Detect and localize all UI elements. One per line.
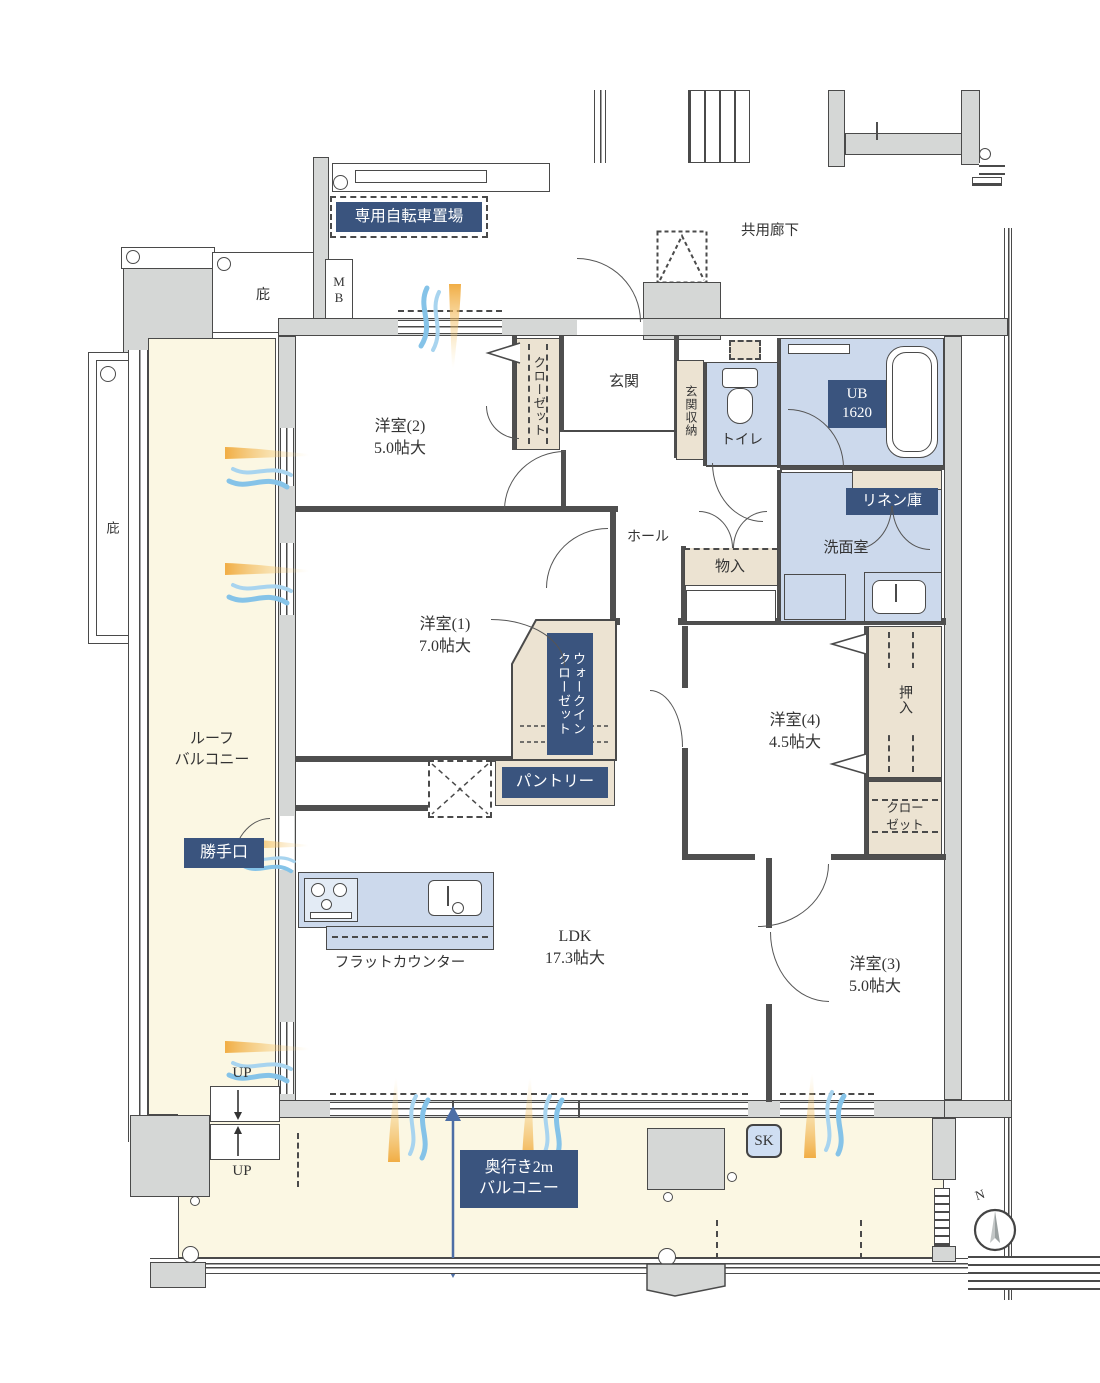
- faucet-stem: [447, 886, 449, 906]
- entrance-dashed-door: [656, 230, 708, 284]
- eaves-left-inner: [96, 360, 130, 636]
- meter-box-label: M B: [325, 261, 353, 319]
- slide-chevron-icon: [828, 632, 868, 656]
- partition: [296, 506, 618, 512]
- bathtub-inner: [892, 352, 932, 452]
- wall-right-ext: [944, 1100, 1012, 1118]
- linen-shelf: [852, 470, 942, 490]
- room-size: 5.0帖大: [374, 438, 426, 460]
- hall-passage-door: [546, 528, 608, 588]
- washer-space: [784, 574, 846, 620]
- wall-top-1: [828, 90, 845, 167]
- room-name: 洋室(4): [770, 710, 821, 732]
- balcony-rail-bottom: [150, 1258, 1012, 1274]
- stair-arrow-icon: [232, 1126, 244, 1158]
- partition: [296, 805, 428, 811]
- bicycle-parking-label: 専用自転車置場: [336, 202, 482, 232]
- wall-right: [944, 336, 962, 1100]
- closet-bedroom2-label: クローゼット: [522, 350, 554, 442]
- bedroom1-label: 洋室(1) 7.0帖大: [385, 612, 505, 660]
- sk-label: SK: [746, 1126, 782, 1156]
- drain-icon: [663, 1192, 673, 1202]
- wall-top: [278, 318, 1008, 336]
- up-label-bottom: UP: [218, 1160, 266, 1182]
- bedroom4-door: [758, 864, 829, 927]
- entrance-label: 玄関: [592, 370, 656, 394]
- room-size: 17.3帖大: [545, 948, 605, 970]
- fridge-x-icon: [428, 760, 492, 818]
- opening: [620, 618, 678, 625]
- toilet-label: トイレ: [714, 430, 770, 452]
- basin-tap: [895, 584, 897, 602]
- pipe-icon: [979, 148, 991, 160]
- burner-icon: [321, 899, 332, 910]
- eaves-joint-icon: [100, 366, 116, 382]
- entrance-door: [577, 258, 641, 322]
- airflow-icon: [223, 557, 311, 611]
- airflow-icon: [798, 1072, 852, 1160]
- grill: [310, 912, 352, 919]
- stair-box-bottom: [210, 1124, 280, 1160]
- balcony-partition-dash: [297, 1133, 299, 1187]
- airflow-icon: [413, 282, 467, 370]
- room-size: 7.0帖大: [419, 636, 471, 658]
- stair-arrow-icon: [232, 1088, 244, 1120]
- back-door-label: 勝手口: [184, 838, 264, 868]
- monoire-door-right: [733, 511, 767, 548]
- faucet-icon: [452, 902, 464, 914]
- bedroom2-label: 洋室(2) 5.0帖大: [340, 414, 460, 462]
- airflow-icon: [223, 441, 311, 495]
- bicycle-roof-inner: [355, 170, 487, 183]
- right-fence-lines: [968, 1256, 1100, 1290]
- wall-top-3: [961, 90, 980, 165]
- compass-icon: [966, 1198, 1024, 1256]
- burner-icon: [333, 883, 347, 897]
- entrance-storage-label: 玄関収納: [676, 372, 704, 450]
- eaves-left-label: 庇: [100, 508, 122, 548]
- roof-balcony-label: ルーフ バルコニー: [160, 724, 264, 776]
- mullion: [578, 1100, 580, 1118]
- bedroom4-label: 洋室(4) 4.5帖大: [735, 708, 855, 756]
- burner-icon: [311, 883, 325, 897]
- balcony-right-wall: [932, 1118, 956, 1180]
- opening: [682, 688, 688, 748]
- room-name: 洋室(2): [375, 416, 426, 438]
- shelf-joint-icon: [217, 257, 231, 271]
- oshiire-label: 押入: [886, 668, 922, 732]
- room-name: 洋室(3): [850, 954, 901, 976]
- toilet-bowl: [727, 388, 753, 424]
- closet-bedroom4-label: クロー ゼット: [872, 796, 938, 838]
- balcony-depth-label: 奥行き2m バルコニー: [460, 1150, 578, 1208]
- toilet-upper-storage: [729, 340, 761, 360]
- rail-end-block: [150, 1262, 206, 1288]
- stair-box-top: [210, 1086, 280, 1122]
- drain-icon: [190, 1196, 200, 1206]
- wall-top-2: [845, 133, 963, 155]
- rail-joint-icon: [182, 1246, 199, 1263]
- flat-counter-label: フラットカウンター: [322, 952, 478, 974]
- vent-lines: [979, 163, 1005, 175]
- eaves-top-label: 庇: [246, 284, 280, 308]
- monoire-label: 物入: [700, 554, 760, 580]
- wall-tick: [876, 122, 878, 140]
- hall-label: ホール: [616, 527, 680, 549]
- up-label-top: UP: [218, 1062, 266, 1084]
- ldk-label: LDK 17.3帖大: [515, 924, 635, 972]
- shelf-joint-icon: [126, 250, 140, 264]
- stairwell-wall: [594, 90, 606, 163]
- room-name: 洋室(1): [420, 614, 471, 636]
- balcony-left-block: [130, 1115, 210, 1197]
- balcony-structure-block: [647, 1128, 725, 1190]
- toilet-tank: [722, 368, 758, 388]
- room-size: 4.5帖大: [769, 732, 821, 754]
- bath-shelf: [788, 344, 850, 354]
- common-corridor-label: 共用廊下: [723, 220, 817, 242]
- bedroom3-label: 洋室(3) 5.0帖大: [815, 952, 935, 1000]
- unit-bath-label: UB 1620: [828, 380, 886, 428]
- roof-balcony-rail: [128, 350, 148, 1142]
- hatch-box: [972, 177, 1002, 186]
- balcony-right-foot: [932, 1246, 956, 1262]
- roof-joint-icon: [333, 175, 348, 190]
- floor-plan: 庇 専用自転車置場 共用廊下 M B 庇 ルーフ バルコニー: [0, 0, 1100, 1383]
- right-hatch-window: [934, 1188, 950, 1246]
- basin: [872, 580, 926, 614]
- monoire-door-left: [699, 511, 733, 548]
- room-name: LDK: [559, 926, 592, 948]
- counter-dash: [332, 936, 488, 938]
- room-size: 5.0帖大: [849, 976, 901, 998]
- drain-icon: [727, 1172, 737, 1182]
- closet2-door: [486, 406, 519, 439]
- slide-chevron-icon: [484, 341, 522, 365]
- bedroom4-side-door: [650, 690, 683, 747]
- bedroom2-door: [504, 451, 565, 510]
- outer-edge-line: [1004, 228, 1012, 1300]
- pantry-label: パントリー: [502, 767, 608, 798]
- stairs-adjacent: [688, 90, 750, 163]
- kitchen-counter-return: [326, 926, 494, 950]
- balcony-step-block: [645, 1262, 727, 1298]
- airflow-icon: [382, 1076, 436, 1164]
- monoire-lower: [686, 590, 776, 622]
- entrance-step-line: [564, 430, 676, 432]
